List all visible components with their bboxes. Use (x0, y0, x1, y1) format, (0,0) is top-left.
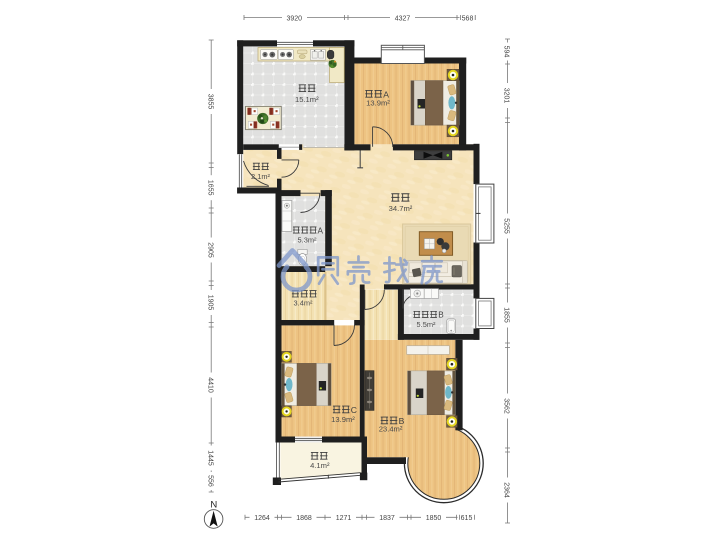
svg-text:2364: 2364 (503, 482, 510, 498)
svg-text:568: 568 (462, 15, 474, 22)
svg-text:3201: 3201 (503, 88, 510, 104)
svg-text:1905: 1905 (206, 295, 213, 311)
svg-text:3920: 3920 (287, 15, 303, 22)
svg-text:2.1m²: 2.1m² (251, 172, 270, 181)
svg-text:B: B (438, 311, 444, 320)
svg-text:3562: 3562 (503, 398, 510, 414)
svg-text:13.9m²: 13.9m² (366, 98, 390, 107)
svg-text:4.1m²: 4.1m² (310, 461, 330, 470)
svg-text:4327: 4327 (395, 15, 411, 22)
svg-text:A: A (318, 226, 324, 235)
svg-text:5255: 5255 (503, 218, 510, 234)
svg-text:23.4m²: 23.4m² (379, 425, 403, 434)
svg-text:C: C (351, 405, 357, 415)
svg-text:556: 556 (206, 475, 213, 487)
svg-text:1850: 1850 (426, 515, 442, 522)
svg-text:1655: 1655 (206, 180, 213, 196)
svg-text:1855: 1855 (503, 307, 510, 323)
svg-text:1271: 1271 (336, 515, 352, 522)
svg-text:1868: 1868 (296, 515, 312, 522)
svg-text:5.5m²: 5.5m² (417, 320, 436, 329)
svg-text:2905: 2905 (206, 242, 213, 258)
svg-text:3855: 3855 (206, 94, 213, 110)
svg-text:594: 594 (503, 46, 510, 58)
svg-text:4410: 4410 (206, 377, 213, 393)
svg-text:N: N (210, 500, 217, 511)
svg-text:1264: 1264 (254, 515, 270, 522)
svg-text:13.9m²: 13.9m² (331, 415, 355, 424)
svg-text:15.1m²: 15.1m² (295, 95, 319, 104)
svg-text:1445: 1445 (206, 450, 213, 466)
svg-text:3.4m²: 3.4m² (294, 298, 313, 307)
svg-text:34.7m²: 34.7m² (389, 204, 413, 213)
svg-text:5.3m²: 5.3m² (298, 236, 317, 245)
svg-text:615: 615 (461, 515, 473, 522)
svg-text:1837: 1837 (379, 515, 395, 522)
